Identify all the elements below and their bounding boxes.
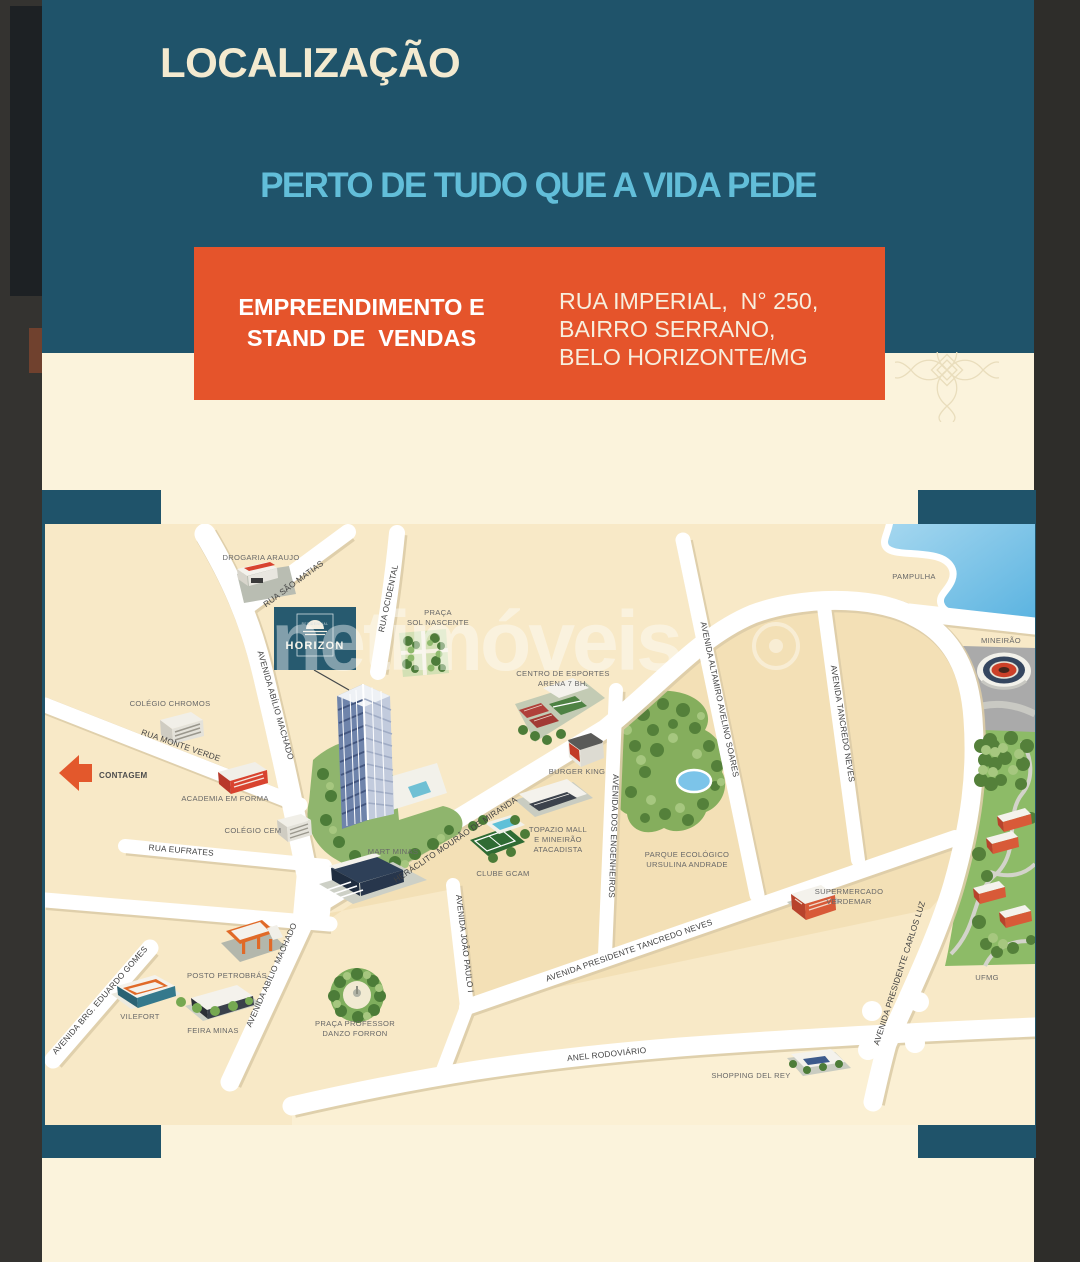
svg-text:MART MINAS: MART MINAS <box>368 847 418 856</box>
svg-text:SOL NASCENTE: SOL NASCENTE <box>407 618 469 627</box>
svg-text:PRAÇA: PRAÇA <box>424 608 452 617</box>
svg-text:POSTO PETROBRÁS: POSTO PETROBRÁS <box>187 971 267 980</box>
svg-text:COLÉGIO CEM: COLÉGIO CEM <box>225 826 282 835</box>
svg-text:PAMPULHA: PAMPULHA <box>892 572 936 581</box>
svg-text:ACADEMIA EM FORMA: ACADEMIA EM FORMA <box>181 794 269 803</box>
svg-text:CLUBE GCAM: CLUBE GCAM <box>476 869 529 878</box>
svg-text:PRAÇA PROFESSOR: PRAÇA PROFESSOR <box>315 1019 395 1028</box>
svg-text:VERDEMAR: VERDEMAR <box>826 897 872 906</box>
svg-text:ATACADISTA: ATACADISTA <box>534 845 584 854</box>
svg-text:VILEFORT: VILEFORT <box>120 1012 159 1021</box>
svg-text:PARQUE ECOLÓGICO: PARQUE ECOLÓGICO <box>645 850 729 859</box>
svg-text:FEIRA MINAS: FEIRA MINAS <box>187 1026 238 1035</box>
svg-text:E MINEIRÃO: E MINEIRÃO <box>534 835 582 844</box>
svg-text:ARENA 7 BH.: ARENA 7 BH. <box>538 679 588 688</box>
svg-text:URSULINA ANDRADE: URSULINA ANDRADE <box>646 860 728 869</box>
svg-text:DROGARIA ARAUJO: DROGARIA ARAUJO <box>222 553 299 562</box>
svg-text:CENTRO DE ESPORTES: CENTRO DE ESPORTES <box>516 669 609 678</box>
svg-text:DANZO FORRON: DANZO FORRON <box>322 1029 387 1038</box>
svg-text:SUPERMERCADO: SUPERMERCADO <box>815 887 884 896</box>
svg-text:TOPAZIO MALL: TOPAZIO MALL <box>529 825 587 834</box>
svg-text:CONTAGEM: CONTAGEM <box>99 771 148 780</box>
svg-text:netimóveis: netimóveis <box>271 594 680 688</box>
svg-text:SHOPPING DEL REY: SHOPPING DEL REY <box>711 1071 790 1080</box>
svg-text:MINEIRÃO: MINEIRÃO <box>981 636 1021 645</box>
svg-text:UFMG: UFMG <box>975 973 999 982</box>
svg-text:BURGER KING: BURGER KING <box>549 767 605 776</box>
svg-text:COLÉGIO CHROMOS: COLÉGIO CHROMOS <box>130 699 211 708</box>
